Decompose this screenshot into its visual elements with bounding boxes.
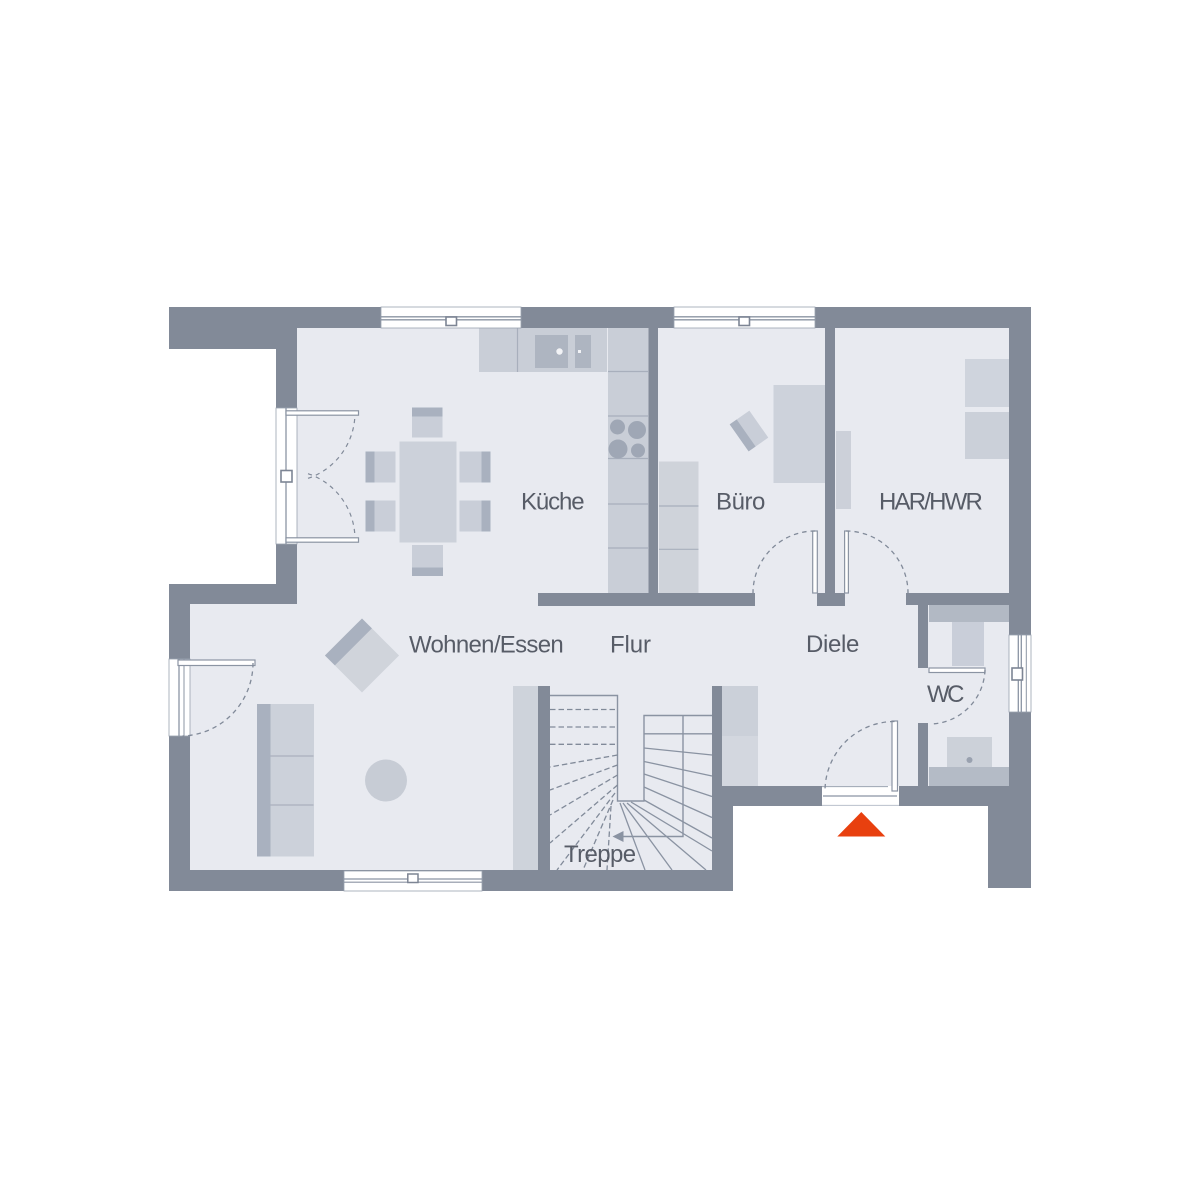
svg-text:WC: WC [927, 681, 964, 708]
svg-text:HAR/HWR: HAR/HWR [879, 489, 983, 516]
svg-text:Büro: Büro [716, 489, 765, 516]
svg-text:Küche: Küche [521, 489, 584, 516]
svg-text:Diele: Diele [806, 631, 859, 658]
svg-text:Treppe: Treppe [564, 841, 636, 868]
svg-text:Wohnen/Essen: Wohnen/Essen [409, 632, 563, 659]
svg-text:Flur: Flur [610, 632, 651, 659]
